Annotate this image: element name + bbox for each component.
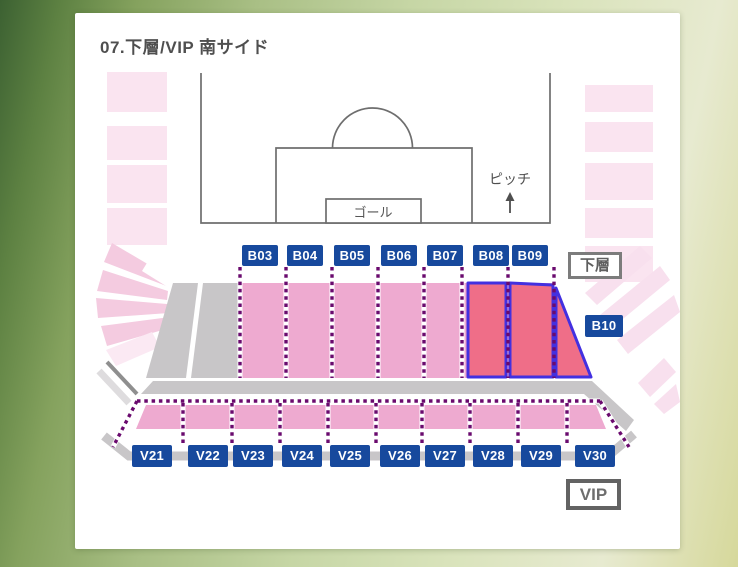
screen-background: { "title": "07.下層/VIP 南サイド", "pitch": { … xyxy=(0,0,738,567)
goal-label: ゴール xyxy=(353,205,392,220)
section-label-b07[interactable]: B07 xyxy=(427,245,463,266)
section-label-v24[interactable]: V24 xyxy=(282,445,322,467)
corner-wall-shade xyxy=(99,371,129,403)
section-label-b03[interactable]: B03 xyxy=(242,245,278,266)
left-stand-column xyxy=(107,72,167,245)
section-b08-selected[interactable] xyxy=(468,283,506,377)
pitch-arrow-icon xyxy=(506,192,515,213)
section-label-v25[interactable]: V25 xyxy=(330,445,370,467)
vip-row[interactable] xyxy=(136,405,606,429)
section-label-b04[interactable]: B04 xyxy=(287,245,323,266)
pitch-outline xyxy=(201,73,550,223)
pitch-label: ピッチ xyxy=(489,171,531,187)
stadium-map: ゴール ピッチ xyxy=(75,13,680,549)
section-label-b08[interactable]: B08 xyxy=(473,245,509,266)
section-label-b09[interactable]: B09 xyxy=(512,245,548,266)
seatmap-card: 07.下層/VIP 南サイド xyxy=(75,13,680,549)
section-label-v26[interactable]: V26 xyxy=(380,445,420,467)
vip-tier-badge: VIP xyxy=(566,479,621,510)
section-label-v21[interactable]: V21 xyxy=(132,445,172,467)
section-b09-selected[interactable] xyxy=(510,283,553,377)
lower-tier-badge: 下層 xyxy=(568,252,622,279)
section-label-v22[interactable]: V22 xyxy=(188,445,228,467)
section-label-b06[interactable]: B06 xyxy=(381,245,417,266)
section-label-v27[interactable]: V27 xyxy=(425,445,465,467)
section-label-v28[interactable]: V28 xyxy=(473,445,513,467)
section-label-v23[interactable]: V23 xyxy=(233,445,273,467)
section-label-v29[interactable]: V29 xyxy=(521,445,561,467)
section-label-b10[interactable]: B10 xyxy=(585,315,623,337)
section-label-b05[interactable]: B05 xyxy=(334,245,370,266)
section-label-v30[interactable]: V30 xyxy=(575,445,615,467)
